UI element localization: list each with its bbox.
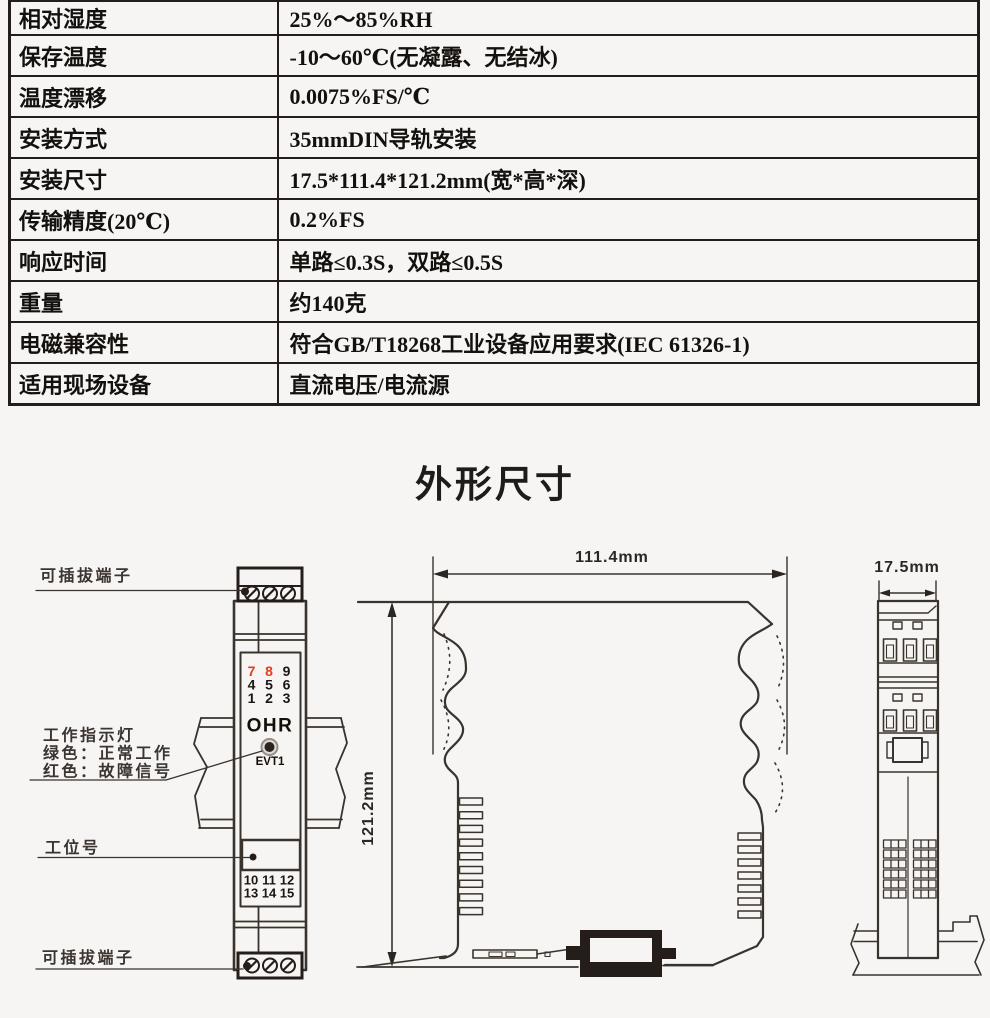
width-dimension-label: 111.4mm (575, 549, 649, 566)
callout-indicator-1: 工作指示灯 (43, 726, 136, 745)
height-dimension: 121.2mm (360, 602, 397, 967)
spec-label: 电磁兼容性 (10, 322, 278, 363)
terminal-number: 1 (248, 690, 256, 706)
front-view-drawing: 7 8 9 4 5 6 1 2 3 OHR EVT1 10 11 12 13 1… (30, 566, 347, 978)
table-row: 适用现场设备 直流电压/电流源 (10, 363, 979, 405)
hinge-dotted-lines (441, 634, 785, 813)
spec-label: 适用现场设备 (10, 363, 278, 405)
spec-table: 相对湿度 25%～85%RH 保存温度 -10～60℃(无凝露、无结冰) 温度漂… (8, 0, 980, 406)
end-view-drawing: 17.5mm (851, 559, 984, 975)
width-dimension: 111.4mm (433, 549, 787, 754)
bottom-latch (363, 948, 578, 967)
spec-value: 17.5*111.4*121.2mm(宽*高*深) (278, 158, 979, 199)
table-row: 安装方式 35mmDIN导轨安装 (10, 117, 979, 158)
callout-indicator-2: 绿色：正常工作 (43, 744, 173, 763)
spec-value: 约140克 (278, 281, 979, 322)
table-row: 响应时间 单路≤0.3S，双路≤0.5S (10, 240, 979, 281)
spec-label: 相对湿度 (10, 1, 278, 35)
dimension-drawing: 7 8 9 4 5 6 1 2 3 OHR EVT1 10 11 12 13 1… (0, 540, 990, 1018)
spec-value: 直流电压/电流源 (278, 363, 979, 405)
callout-dot (243, 962, 251, 970)
page-title: 外形尺寸 (0, 454, 990, 508)
terminal-block-top (238, 568, 302, 601)
terminal-numbers-bottom: 10 11 12 13 14 15 (244, 873, 294, 901)
spec-value: 0.0075%FS/℃ (278, 76, 979, 117)
table-row: 温度漂移 0.0075%FS/℃ (10, 76, 979, 117)
brand-logo: OHR (247, 716, 294, 737)
table-row: 保存温度 -10～60℃(无凝露、无结冰) (10, 35, 979, 76)
side-view-drawing: 111.4mm 121.2mm (357, 549, 787, 977)
height-dimension-label: 121.2mm (360, 770, 377, 846)
spec-value: 0.2%FS (278, 199, 979, 240)
terminal-numbers-top: 7 8 9 4 5 6 1 2 3 (248, 663, 291, 706)
vent-slots (460, 798, 762, 918)
terminal-number: 14 (262, 886, 277, 901)
spec-label: 重量 (10, 281, 278, 322)
module-body (234, 601, 306, 970)
spec-label: 传输精度(20℃) (10, 199, 278, 240)
terminal-block-bottom (238, 953, 302, 978)
terminal-number: 3 (283, 690, 291, 706)
callout-terminal-top: 可插拔端子 (40, 566, 133, 585)
callout-dot (250, 854, 257, 861)
led-indicator (262, 739, 278, 755)
spec-value: 35mmDIN导轨安装 (278, 117, 979, 158)
spec-value: -10～60℃(无凝露、无结冰) (278, 35, 979, 76)
spec-label: 安装方式 (10, 117, 278, 158)
spec-value: 单路≤0.3S，双路≤0.5S (278, 240, 979, 281)
terminal-number: 13 (244, 886, 258, 901)
table-row: 重量 约140克 (10, 281, 979, 322)
callout-station: 工位号 (45, 838, 101, 857)
spec-label: 保存温度 (10, 35, 278, 76)
table-row: 传输精度(20℃) 0.2%FS (10, 199, 979, 240)
spec-value: 25%～85%RH (278, 1, 979, 35)
spec-label: 响应时间 (10, 240, 278, 281)
table-row: 安装尺寸 17.5*111.4*121.2mm(宽*高*深) (10, 158, 979, 199)
label-window-end (893, 738, 922, 762)
spec-label: 安装尺寸 (10, 158, 278, 199)
depth-dimension: 17.5mm (874, 559, 940, 601)
spec-label: 温度漂移 (10, 76, 278, 117)
terminal-number: 2 (265, 690, 273, 706)
table-row: 相对湿度 25%～85%RH (10, 1, 979, 35)
callouts: 可插拔端子 工作指示灯 绿色：正常工作 红色：故障信号 工位号 可插拔端子 (30, 566, 262, 969)
table-row: 电磁兼容性 符合GB/T18268工业设备应用要求(IEC 61326-1) (10, 322, 979, 363)
terminal-number: 15 (280, 886, 294, 901)
din-clip (566, 930, 676, 977)
callout-terminal-bottom: 可插拔端子 (42, 948, 135, 967)
callout-indicator-3: 红色：故障信号 (43, 762, 173, 781)
right-profile (665, 624, 772, 965)
depth-dimension-label: 17.5mm (874, 559, 940, 576)
spec-value: 符合GB/T18268工业设备应用要求(IEC 61326-1) (278, 322, 979, 363)
led-label: EVT1 (256, 756, 285, 768)
datasheet-page: { "page": { "background": "#f6f5f3" }, "… (0, 0, 990, 1018)
callout-dot (241, 588, 249, 596)
